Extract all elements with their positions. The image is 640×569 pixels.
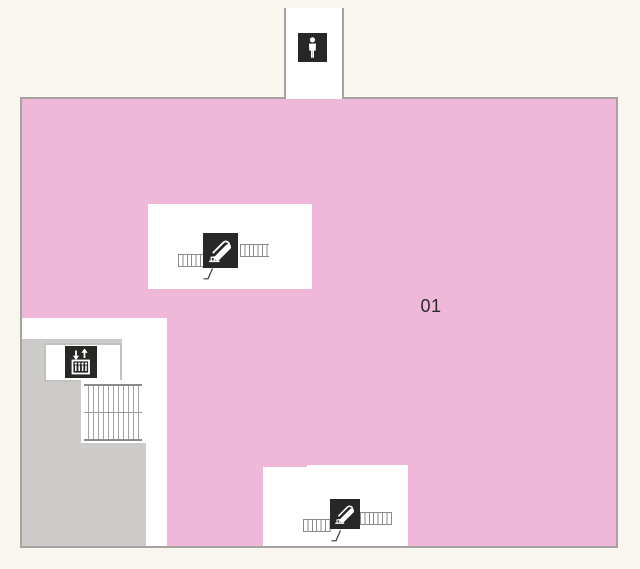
restroom-annex	[284, 8, 344, 99]
service-core-cutout	[122, 339, 146, 382]
escalator-direction-tick	[331, 530, 342, 542]
elevator-icon	[65, 346, 97, 378]
stairs-symbol	[84, 384, 142, 441]
escalator-steps-upper-run	[360, 512, 392, 525]
escalator-steps-lower-run	[303, 519, 331, 532]
escalator-direction-tick	[203, 268, 214, 280]
mens-restroom-icon	[298, 33, 327, 62]
escalator-icon-upper	[203, 233, 238, 268]
escalator-icon-lower	[330, 499, 360, 529]
escalator-landing-lower-step	[307, 465, 408, 473]
floor-area-label: 01	[414, 295, 448, 317]
escalator-steps-upper-run	[240, 244, 269, 257]
